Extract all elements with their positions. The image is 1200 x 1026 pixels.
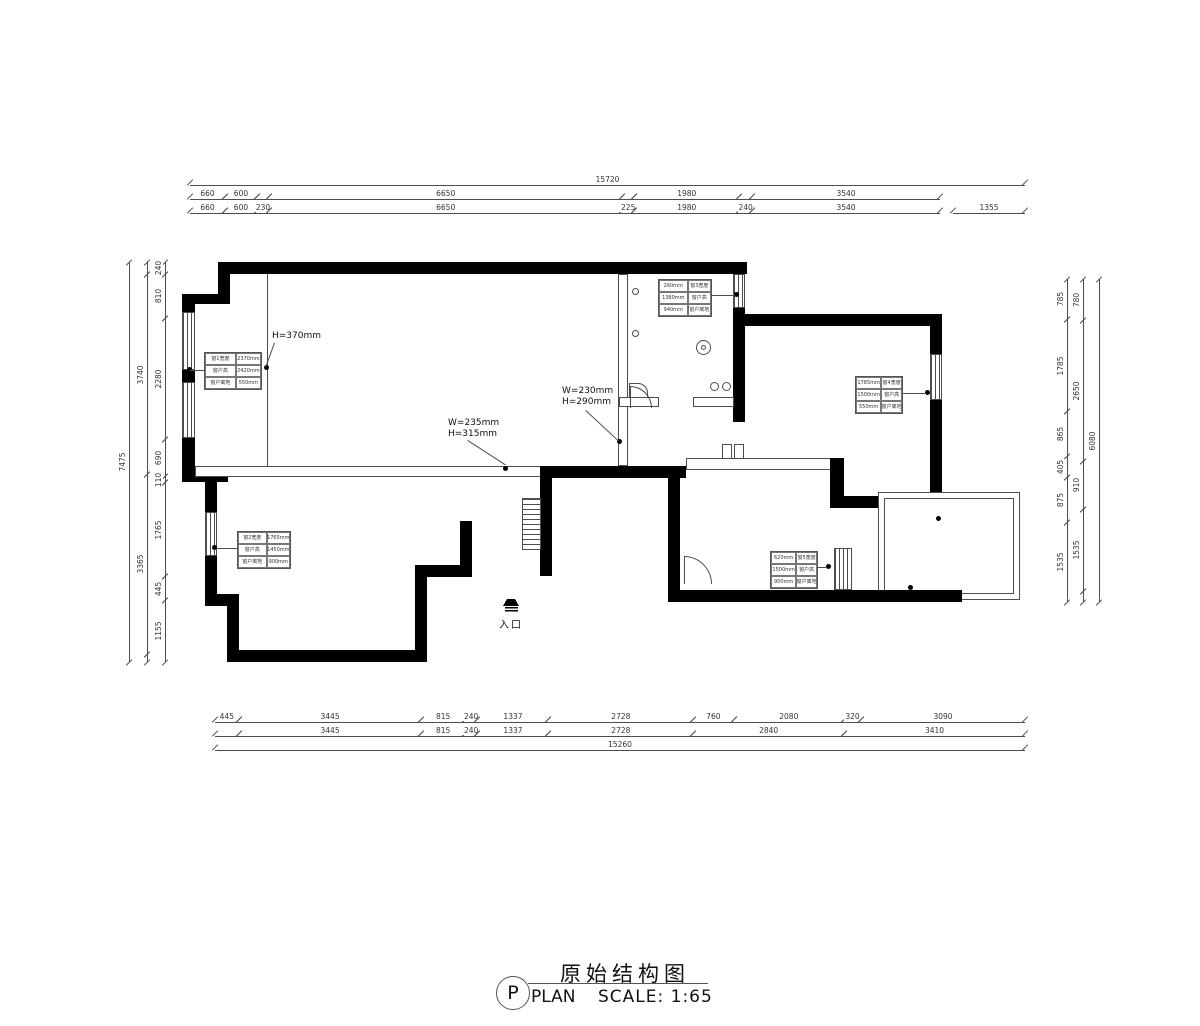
right-wall-b xyxy=(930,400,942,492)
window-spec-table-bottom-right: 620mm窗5宽度1500mm窗户高900mm窗户离地 xyxy=(770,551,818,589)
dim-segment: 865 xyxy=(1067,412,1068,457)
dim-segment: 2840 xyxy=(693,736,844,737)
dim-label: 3445 xyxy=(320,712,341,721)
dim-segment: 3365 xyxy=(147,474,148,654)
leader-left-top xyxy=(190,370,205,371)
topright-door-gap xyxy=(724,459,750,469)
dim-chain-left-inner: 240810228069011017654451155 xyxy=(154,262,166,662)
dim-chain-bottom-row2: 34458152401337272828403410 xyxy=(215,725,1025,737)
left-wall-a xyxy=(182,294,195,312)
wing-left-wall-a xyxy=(205,482,217,512)
dim-label: 1980 xyxy=(676,203,697,212)
wing-right-wall xyxy=(415,575,427,662)
dim-label: 2728 xyxy=(610,712,631,721)
dim-segment: 3445 xyxy=(239,736,422,737)
plan-symbol-letter: P xyxy=(507,982,518,1004)
dim-segment: 1355 xyxy=(953,213,1025,214)
dim-label: 3410 xyxy=(924,726,945,735)
dim-segment: 240 xyxy=(739,213,752,214)
living-partition xyxy=(195,466,541,477)
dim-label: 240 xyxy=(154,260,163,276)
dim-label: 445 xyxy=(219,712,235,721)
annotation-text: H=290mm xyxy=(562,397,613,408)
dim-label: 3445 xyxy=(320,726,341,735)
ann-dot-w235 xyxy=(503,466,508,471)
annotation-text: H=370mm xyxy=(272,331,321,342)
dim-chain-left-overall: 7475 xyxy=(118,262,130,662)
dim-segment: 240 xyxy=(465,722,478,723)
dim-label: 1337 xyxy=(502,712,523,721)
annotation-text: W=230mm xyxy=(562,386,613,397)
dim-chain-top-row2: 660600230665022519802403540 xyxy=(190,202,940,214)
dim-segment: 6650 xyxy=(269,213,622,214)
dim-segment: 1337 xyxy=(477,736,548,737)
spec-cell: 900mm xyxy=(771,576,796,588)
dim-label: 600 xyxy=(233,189,249,198)
spec-cell: 窗户离地 xyxy=(688,304,711,316)
dim-segment: 810 xyxy=(165,275,166,318)
mid-stub-wall xyxy=(540,478,552,576)
entrance-marker: 入口 xyxy=(496,599,526,631)
drain-1 xyxy=(632,288,639,295)
dim-segment: 2280 xyxy=(165,318,166,440)
dim-label: 6650 xyxy=(435,203,456,212)
entrance-awning-icon xyxy=(503,599,519,606)
dim-segment: 3445 xyxy=(239,722,422,723)
bottomright-left-wall xyxy=(668,478,680,602)
dim-chain-bottom-row1: 44534458152401337272876020803203090 xyxy=(215,711,1025,723)
right-wall-a xyxy=(930,326,942,354)
annotation-w230: W=230mm H=290mm xyxy=(562,386,613,408)
mid-wall xyxy=(540,466,686,478)
dim-segment xyxy=(257,199,269,200)
spec-cell: 窗户高 xyxy=(881,389,902,401)
dim-segment: 2728 xyxy=(548,736,693,737)
dim-label: 1355 xyxy=(978,203,999,212)
title-underline xyxy=(528,983,708,984)
spec-cell: 2420mm xyxy=(236,365,261,377)
floor-plan-canvas: 15720 660600665019803540 660600230665022… xyxy=(0,0,1200,1026)
dim-segment: 910 xyxy=(1083,461,1084,509)
dim-label: 2080 xyxy=(778,712,799,721)
spec-cell: 1785mm xyxy=(856,377,881,389)
dim-label: 600 xyxy=(233,203,249,212)
entrance-label: 入口 xyxy=(496,616,526,631)
basin-2 xyxy=(722,382,731,391)
dim-segment: 815 xyxy=(421,722,464,723)
bath-right-wall xyxy=(733,308,745,422)
dim-label: 780 xyxy=(1072,292,1081,308)
dim-segment: 660 xyxy=(190,213,225,214)
dim-segment xyxy=(1083,591,1084,602)
leader-left-bottom xyxy=(217,548,238,549)
dim-segment: 760 xyxy=(693,722,733,723)
spec-cell: 窗户离地 xyxy=(238,556,267,568)
dim-label: 2728 xyxy=(610,726,631,735)
dim-label: 660 xyxy=(199,189,215,198)
dim-label: 15260 xyxy=(607,740,633,749)
dim-label: 405 xyxy=(1056,459,1065,475)
annotation-text: W=235mm xyxy=(448,418,499,429)
spec-cell: 窗户离地 xyxy=(205,377,236,389)
leader-right xyxy=(899,393,926,394)
spec-cell: 1765mm xyxy=(267,532,290,544)
dim-label: 690 xyxy=(154,450,163,466)
leader-w230 xyxy=(585,410,619,441)
dim-segment: 240 xyxy=(465,736,478,737)
drawing-scale: SCALE: 1:65 xyxy=(598,987,713,1007)
dim-label: 910 xyxy=(1072,477,1081,493)
bath-counter-2 xyxy=(693,397,734,407)
dim-segment: 1980 xyxy=(634,213,739,214)
dim-label: 810 xyxy=(154,288,163,304)
bath-partition xyxy=(618,274,628,466)
dim-segment: 690 xyxy=(165,440,166,477)
dim-segment: 3540 xyxy=(752,213,940,214)
spec-cell: 窗户高 xyxy=(205,365,236,377)
spec-cell: 窗户高 xyxy=(238,544,267,556)
dim-segment: 445 xyxy=(165,577,166,601)
dim-chain-right-overall: 6080 xyxy=(1088,279,1100,602)
wing-stub-wall xyxy=(460,521,472,577)
dim-chain-bottom-overall: 15260 xyxy=(215,739,1025,751)
spec-cell: 窗3宽度 xyxy=(688,280,711,292)
dim-chain-top-1355: 1355 xyxy=(953,202,1025,214)
dim-segment: 2080 xyxy=(734,722,844,723)
dim-segment: 6080 xyxy=(1099,279,1100,602)
wing-bottom-wall xyxy=(227,650,427,662)
dim-segment: 1785 xyxy=(1067,320,1068,412)
spec-cell: 1380mm xyxy=(659,292,688,304)
dim-label: 3365 xyxy=(136,554,145,575)
spec-cell: 260mm xyxy=(659,280,688,292)
dim-segment: 600 xyxy=(225,213,257,214)
dim-segment: 1535 xyxy=(1083,510,1084,592)
radiator xyxy=(834,548,852,590)
dim-segment: 1337 xyxy=(477,722,548,723)
balcony-dot xyxy=(936,516,941,521)
topright-stub-v xyxy=(830,458,844,508)
spec-cell: 940mm xyxy=(659,304,688,316)
window-spec-table-right: 1785mm窗4宽度1500mm窗户高550mm窗户离地 xyxy=(855,376,903,414)
spec-cell: 620mm xyxy=(771,552,796,564)
dim-label: 1765 xyxy=(154,519,163,540)
dim-label: 2280 xyxy=(154,368,163,389)
dim-label: 7475 xyxy=(118,451,127,472)
door-frame-1 xyxy=(722,444,732,459)
topright-stub-h xyxy=(844,496,880,508)
dim-segment: 3410 xyxy=(844,736,1025,737)
dim-segment: 1765 xyxy=(165,482,166,576)
dim-label: 1535 xyxy=(1072,540,1081,561)
spec-cell: 900mm xyxy=(267,556,290,568)
spec-cell: 1450mm xyxy=(267,544,290,556)
left-window-1 xyxy=(182,312,195,370)
dim-segment: 1980 xyxy=(634,199,739,200)
annotation-text: H=315mm xyxy=(448,429,499,440)
dim-label: 1980 xyxy=(676,189,697,198)
beam-line xyxy=(267,274,268,466)
bottom-wall xyxy=(668,590,962,602)
spec-cell: 窗户高 xyxy=(688,292,711,304)
balcony-inner-line xyxy=(884,498,1014,594)
bottomright-dot xyxy=(908,585,913,590)
dim-chain-right-inner: 78517858654058751535 xyxy=(1056,279,1068,602)
spec-cell: 窗4宽度 xyxy=(881,377,902,389)
dim-label: 3090 xyxy=(932,712,953,721)
dim-segment: 230 xyxy=(257,213,269,214)
dim-label: 1337 xyxy=(502,726,523,735)
dim-segment: 1535 xyxy=(1067,523,1068,602)
spec-cell: 1500mm xyxy=(856,389,881,401)
dim-segment: 2650 xyxy=(1083,320,1084,461)
window-spec-table-left-bottom: 窗2宽度1765mm窗户高1450mm窗户离地900mm xyxy=(237,531,291,569)
shaft-vent xyxy=(522,498,541,550)
dim-segment: 1155 xyxy=(165,600,166,662)
drawing-title-en: PLAN xyxy=(531,987,575,1007)
annotation-h370: H=370mm xyxy=(272,331,321,342)
top-wall xyxy=(218,262,747,274)
leader-w235 xyxy=(467,440,505,465)
dim-segment: 7475 xyxy=(129,262,130,662)
dim-segment: 3740 xyxy=(147,275,148,475)
door-frame-2 xyxy=(734,444,744,459)
dim-label: 445 xyxy=(154,580,163,596)
dim-label: 875 xyxy=(1056,492,1065,508)
basin-1 xyxy=(710,382,719,391)
topright-top-wall xyxy=(745,314,942,326)
dim-label: 815 xyxy=(435,712,451,721)
spec-cell: 2370mm xyxy=(236,353,261,365)
dim-label: 785 xyxy=(1056,291,1065,307)
drain-2 xyxy=(632,330,639,337)
window-spec-table-left-top: 窗1宽度2370mm窗户高2420mm窗户离地550mm xyxy=(204,352,262,390)
plan-symbol-circle: P xyxy=(496,976,530,1010)
dim-segment xyxy=(147,654,148,662)
dim-segment: 2728 xyxy=(548,722,693,723)
dim-segment: 15260 xyxy=(215,750,1025,751)
spec-cell: 窗5宽度 xyxy=(796,552,817,564)
dim-segment: 660 xyxy=(190,199,225,200)
dim-chain-right-mid: 78026509101535 xyxy=(1072,279,1084,602)
left-window-2 xyxy=(182,382,195,438)
dim-label: 3740 xyxy=(136,364,145,385)
window-spec-table-bath: 260mm窗3宽度1380mm窗户高940mm窗户离地 xyxy=(658,279,712,317)
entrance-awning-bars xyxy=(505,607,518,613)
bath-door-arc xyxy=(630,386,652,408)
spec-cell: 窗1宽度 xyxy=(205,353,236,365)
spec-cell: 窗户离地 xyxy=(796,576,817,588)
spec-cell: 1500mm xyxy=(771,564,796,576)
dim-label: 2840 xyxy=(758,726,779,735)
dim-label: 15720 xyxy=(595,175,621,184)
dim-label: 865 xyxy=(1056,426,1065,442)
spec-cell: 550mm xyxy=(236,377,261,389)
dim-chain-left-mid: 37403365 xyxy=(136,262,148,662)
dim-label: 6080 xyxy=(1088,430,1097,451)
spec-cell: 窗户高 xyxy=(796,564,817,576)
dim-label: 660 xyxy=(199,203,215,212)
dim-segment: 600 xyxy=(225,199,257,200)
dim-segment: 3540 xyxy=(752,199,940,200)
floor-drain-center xyxy=(701,345,706,350)
dim-label: 3540 xyxy=(835,189,856,198)
dim-label: 760 xyxy=(705,712,721,721)
right-window xyxy=(930,354,942,400)
dim-label: 2650 xyxy=(1072,380,1081,401)
dim-label: 1535 xyxy=(1056,552,1065,573)
leader-bath xyxy=(710,295,735,296)
spec-cell: 窗2宽度 xyxy=(238,532,267,544)
dim-segment: 785 xyxy=(1067,279,1068,320)
spec-cell: 550mm xyxy=(856,401,881,413)
bath-window xyxy=(733,274,745,308)
dim-label: 1155 xyxy=(154,621,163,642)
topright-partition xyxy=(686,458,832,470)
spec-cell: 窗户离地 xyxy=(881,401,902,413)
dim-chain-top-overall: 15720 xyxy=(190,174,1025,186)
dim-segment xyxy=(622,199,634,200)
annotation-w235: W=235mm H=315mm xyxy=(448,418,499,440)
dim-segment: 15720 xyxy=(190,185,1025,186)
dim-label: 815 xyxy=(435,726,451,735)
dim-label: 3540 xyxy=(835,203,856,212)
dim-label: 1785 xyxy=(1056,355,1065,376)
dim-segment: 3090 xyxy=(861,722,1025,723)
dim-chain-top-row1: 660600665019803540 xyxy=(190,188,940,200)
dim-segment: 780 xyxy=(1083,279,1084,320)
dim-label: 6650 xyxy=(435,189,456,198)
dim-segment: 815 xyxy=(421,736,464,737)
dim-segment: 225 xyxy=(622,213,634,214)
dim-segment xyxy=(739,199,752,200)
br-door-arc xyxy=(684,556,712,584)
dim-segment: 6650 xyxy=(269,199,622,200)
dim-segment: 875 xyxy=(1067,477,1068,522)
